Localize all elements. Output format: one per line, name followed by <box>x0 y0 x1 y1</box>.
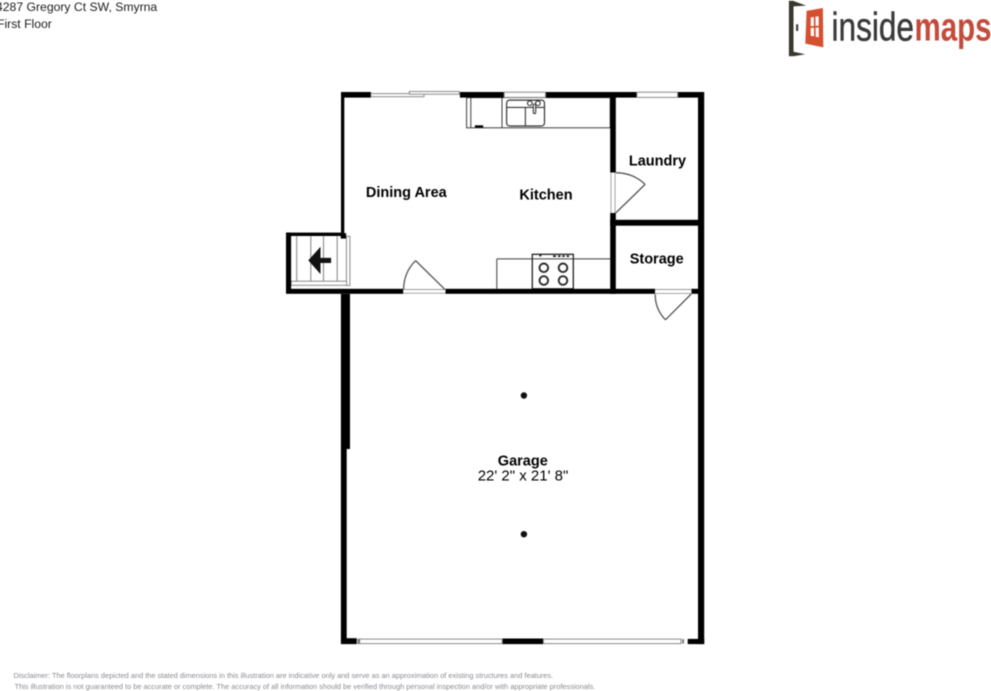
svg-text:Storage: Storage <box>630 251 684 267</box>
svg-text:maps: maps <box>915 6 991 50</box>
svg-text:Laundry: Laundry <box>629 153 686 169</box>
svg-text:inside: inside <box>832 6 915 50</box>
svg-text:Kitchen: Kitchen <box>519 188 572 204</box>
svg-text:Dining Area: Dining Area <box>366 185 448 201</box>
svg-text:22' 2" x 21' 8": 22' 2" x 21' 8" <box>478 468 569 485</box>
